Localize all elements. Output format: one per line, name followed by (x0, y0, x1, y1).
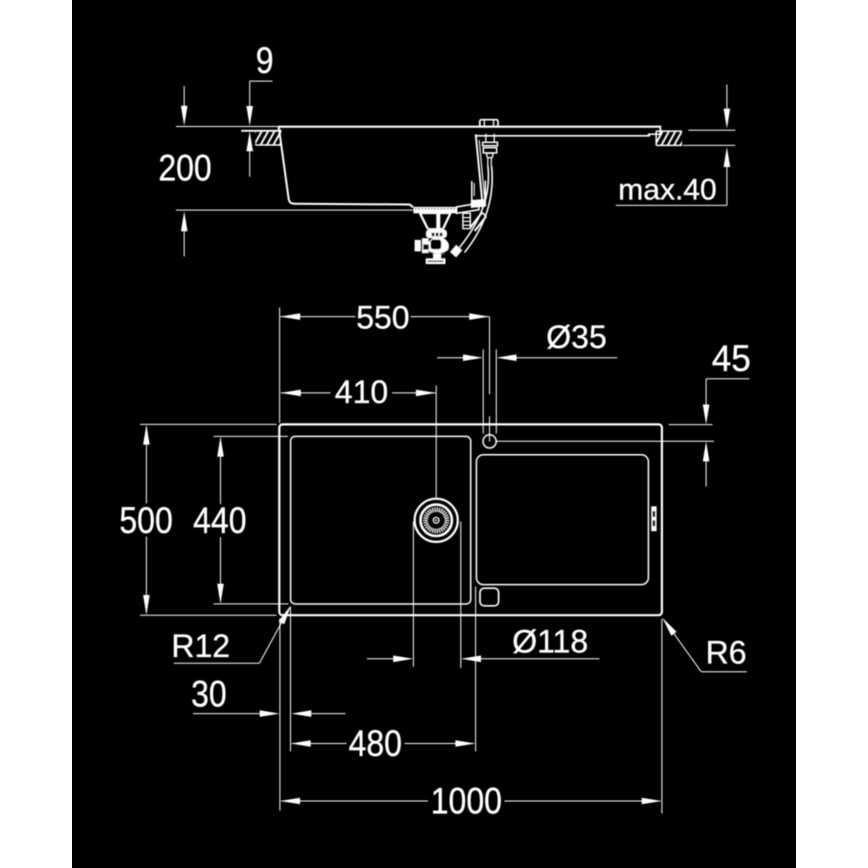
svg-text:Ø118: Ø118 (512, 623, 588, 659)
svg-text:30: 30 (191, 674, 227, 715)
svg-text:R6: R6 (706, 635, 747, 671)
svg-text:45: 45 (712, 337, 751, 379)
svg-text:480: 480 (349, 724, 402, 765)
svg-text:1000: 1000 (431, 781, 502, 822)
svg-text:410: 410 (335, 374, 388, 410)
svg-text:550: 550 (356, 300, 409, 336)
svg-text:Ø35: Ø35 (546, 319, 606, 355)
svg-text:max.40: max.40 (618, 174, 716, 207)
svg-text:200: 200 (158, 148, 211, 189)
svg-text:9: 9 (256, 41, 274, 82)
svg-text:440: 440 (193, 501, 246, 542)
svg-text:500: 500 (119, 501, 172, 542)
svg-text:R12: R12 (171, 628, 230, 664)
